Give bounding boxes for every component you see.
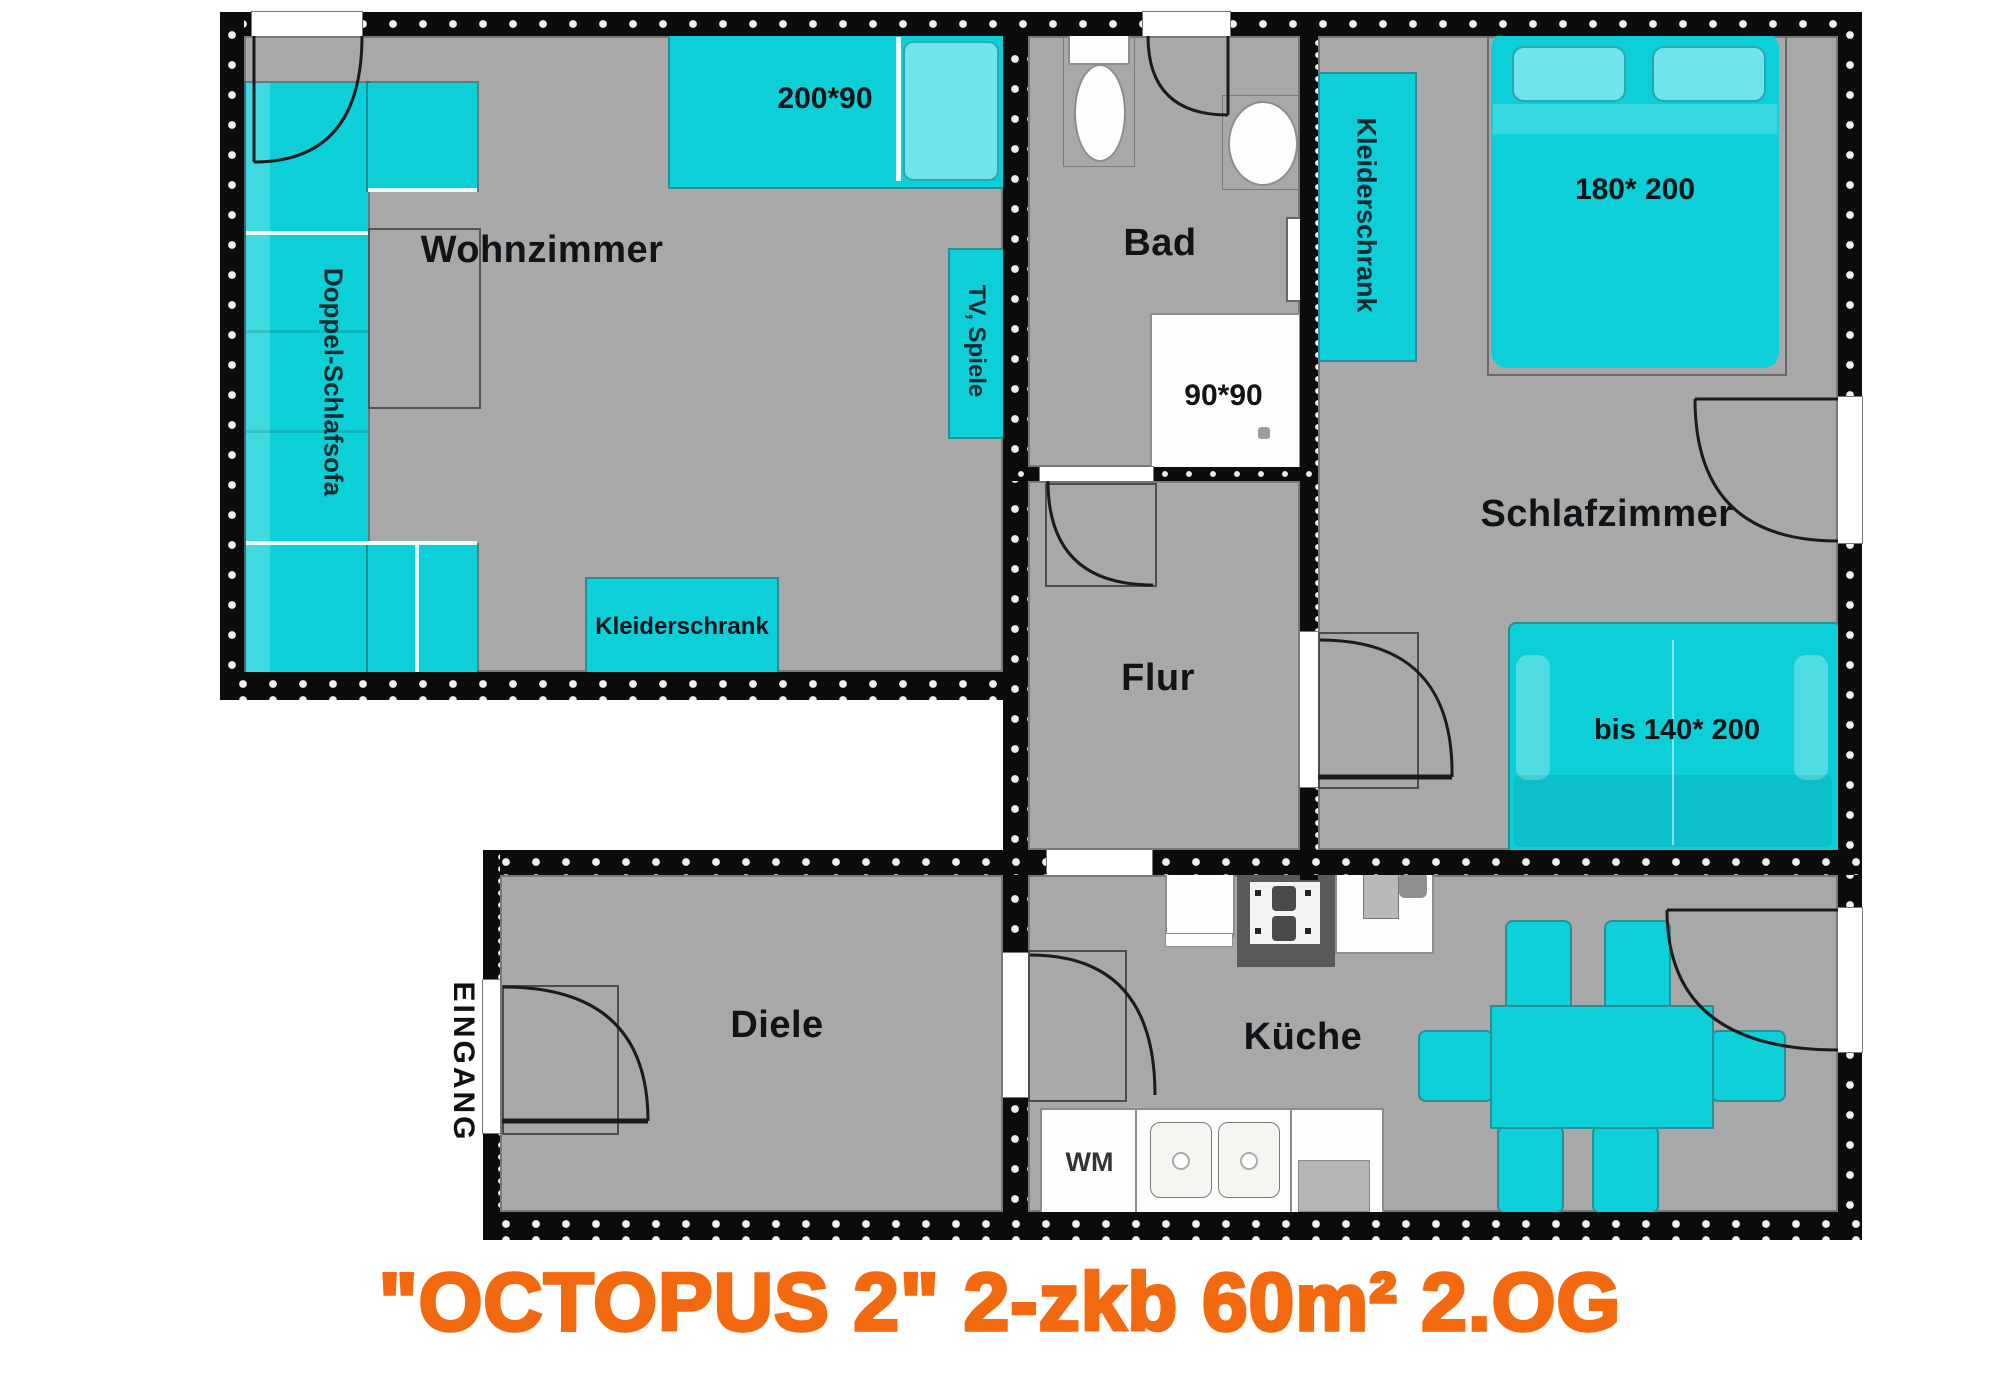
bed-pillow-right <box>1652 46 1766 102</box>
bed-200x90-label: 200*90 <box>700 82 950 116</box>
sink-drain <box>1240 1152 1258 1170</box>
shower-label: 90*90 <box>1150 379 1297 413</box>
plan-title: "OCTOPUS 2" 2-zkb 60m² 2.OG <box>0 1256 2000 1350</box>
schlafzimmer-balcony-door-opening <box>1838 397 1862 543</box>
stove-burner <box>1272 886 1296 911</box>
wardrobe-living-label: Kleiderschrank <box>595 613 768 641</box>
wohnzimmer-door-opening <box>252 12 362 36</box>
toilet-bowl-icon <box>1074 64 1126 162</box>
sofa-seam <box>415 545 419 676</box>
bad-flur-door-frame <box>1045 483 1157 587</box>
kueche-label: Küche <box>1153 1016 1453 1059</box>
sink-drain <box>1172 1152 1190 1170</box>
shower-drain <box>1258 427 1270 439</box>
wall-bottom <box>483 1212 1862 1240</box>
flur-schlafzimmer-door-opening <box>1300 632 1318 787</box>
diele-label: Diele <box>627 1004 927 1047</box>
flur-kueche-passage <box>1047 850 1152 875</box>
kitchen-counter-left-drawers <box>1165 933 1233 947</box>
floor-plan: Doppel-Schlafsofa 200*90 TV, Spiele Klei… <box>0 0 2000 1400</box>
sofa-bedroom-label: bis 140* 200 <box>1532 714 1822 747</box>
entrance-door-opening <box>483 980 500 1133</box>
diele-kueche-door-frame <box>1028 950 1127 1102</box>
wohnzimmer-label: Wohnzimmer <box>392 229 692 272</box>
kueche-balcony-door-opening <box>1838 908 1862 1052</box>
dining-table <box>1490 1005 1714 1129</box>
dining-chair <box>1497 1125 1564 1214</box>
sofa-seam <box>246 541 477 545</box>
wall-right <box>1838 12 1862 1240</box>
washing-machine: WM <box>1040 1108 1139 1216</box>
stove-knob <box>1255 928 1261 934</box>
wall-mid-horizontal <box>483 850 1862 875</box>
bed-180x200-blanket-fold <box>1493 104 1777 134</box>
stove-burner <box>1272 916 1296 941</box>
entrance-door-frame <box>502 985 619 1135</box>
bad-door-opening <box>1143 12 1230 36</box>
kitchen-counter-left <box>1165 868 1235 937</box>
sofa-seam <box>246 231 368 235</box>
wall-wohnzimmer-bottom <box>220 672 1028 700</box>
wall-left <box>220 12 244 700</box>
sofa-seam <box>368 188 477 192</box>
bad-flur-door-opening <box>1040 467 1153 481</box>
sofa-backrest-highlight <box>246 83 270 676</box>
dining-chair <box>1592 1125 1659 1214</box>
dining-chair <box>1604 920 1671 1012</box>
diele-kueche-door-opening <box>1003 953 1028 1097</box>
washing-machine-label: WM <box>1066 1147 1114 1178</box>
bed-pillow-left <box>1512 46 1626 102</box>
sofa-cushion-shade <box>246 430 368 433</box>
bad-label: Bad <box>1010 222 1310 265</box>
dishwasher-front <box>1298 1160 1370 1212</box>
stove-knob <box>1305 890 1311 896</box>
schlafzimmer-label: Schlafzimmer <box>1457 493 1757 536</box>
small-appliance-icon <box>1363 873 1399 919</box>
wardrobe-living: Kleiderschrank <box>585 577 779 676</box>
stove-knob <box>1255 890 1261 896</box>
sofa-bottom-arm <box>368 545 477 676</box>
toilet-tank <box>1068 33 1130 65</box>
stove-knob <box>1305 928 1311 934</box>
sofa-cushion-shade <box>246 330 368 333</box>
sink-basin-icon <box>1228 101 1298 186</box>
sofa-top-arm <box>368 83 477 190</box>
kitchen-faucet-icon <box>1399 872 1427 898</box>
dining-chair <box>1505 920 1572 1012</box>
flur-label: Flur <box>1008 657 1308 700</box>
dining-chair <box>1710 1030 1786 1102</box>
flur-schlafzimmer-door-frame <box>1318 632 1419 789</box>
bed-180x200-label: 180* 200 <box>1491 173 1779 207</box>
wall-top <box>220 12 1862 36</box>
